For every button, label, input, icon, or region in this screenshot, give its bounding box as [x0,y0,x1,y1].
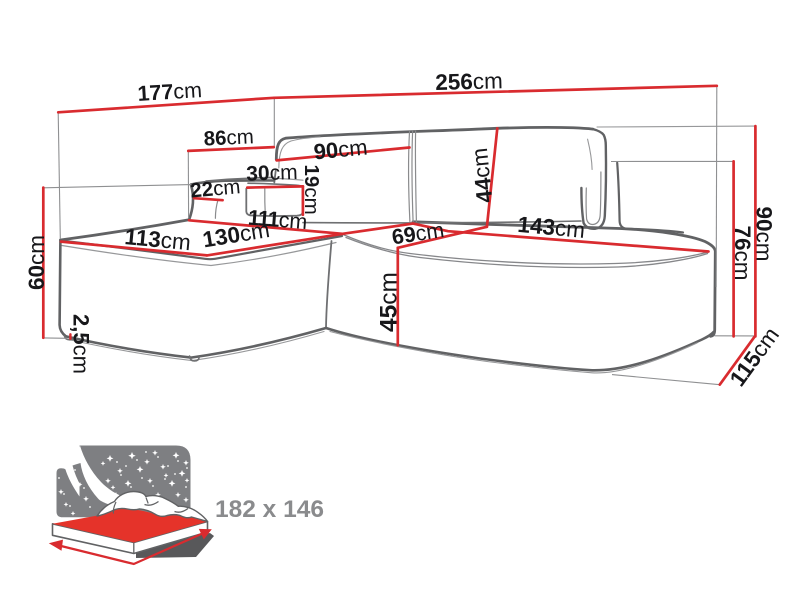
svg-text:90cm: 90cm [313,134,369,164]
svg-text:90cm: 90cm [752,207,777,262]
svg-text:256cm: 256cm [435,68,503,95]
svg-text:76cm: 76cm [730,226,755,281]
svg-text:177cm: 177cm [137,78,203,106]
svg-text:182 x 146: 182 x 146 [215,496,324,523]
svg-text:45cm: 45cm [376,272,403,332]
svg-text:19cm: 19cm [300,165,323,215]
svg-text:60cm: 60cm [24,235,49,290]
svg-text:86cm: 86cm [203,125,254,150]
svg-text:2,5cm: 2,5cm [69,314,94,374]
svg-text:30cm: 30cm [246,161,298,186]
svg-text:22cm: 22cm [189,175,241,202]
